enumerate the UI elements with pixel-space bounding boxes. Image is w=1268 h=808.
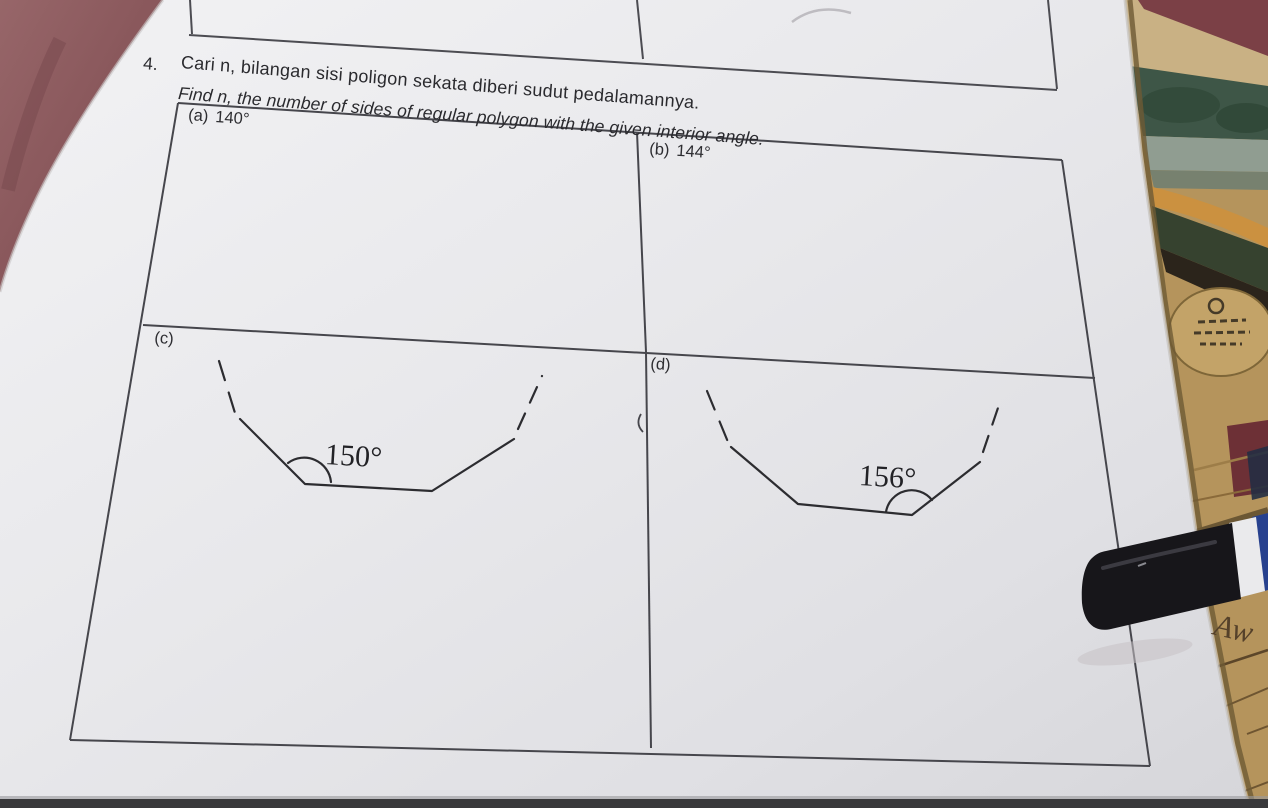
photo-tree-blob [1140, 87, 1220, 123]
part-d-label: (d) [650, 354, 671, 376]
part-a-label: (a)140° [187, 105, 250, 130]
figure-c-angle-value: 150° [324, 440, 383, 473]
round-seal [1169, 288, 1268, 376]
photo-building-band [1150, 170, 1268, 190]
worksheet-photo: 4. Cari n, bilangan sisi poligon sekata … [0, 0, 1268, 808]
question-number: 4. [142, 53, 158, 76]
part-a-letter: (a) [188, 106, 209, 125]
photo-mist-band [1143, 136, 1268, 172]
part-a-angle: 140° [215, 108, 250, 128]
part-b-letter: (b) [649, 140, 670, 159]
bottom-edge-shadow [0, 799, 1268, 808]
part-b-label: (b)144° [649, 139, 712, 164]
figure-d-angle-value: 156° [858, 461, 917, 494]
part-c-label: (c) [154, 328, 174, 350]
part-b-angle: 144° [676, 142, 711, 162]
